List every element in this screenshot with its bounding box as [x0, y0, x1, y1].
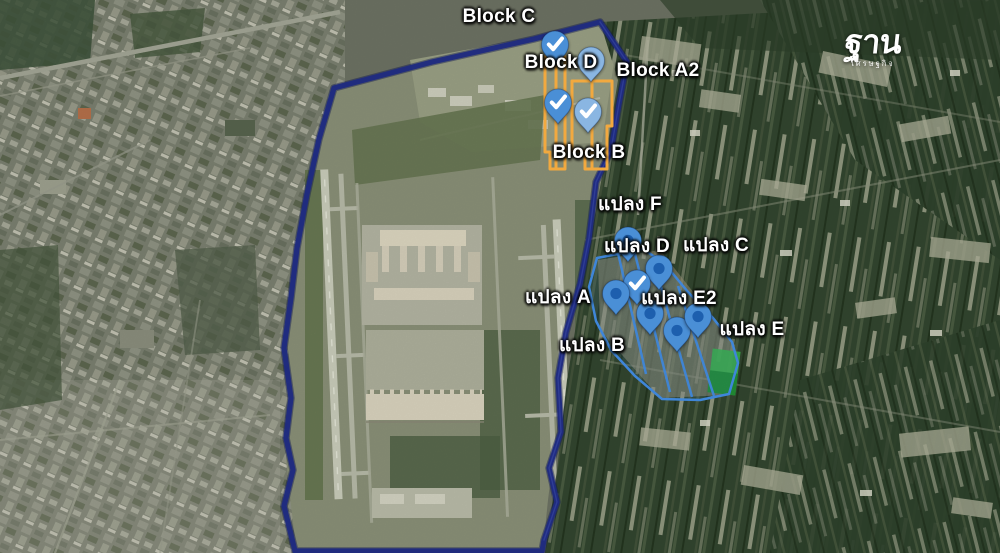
map-pin-check[interactable] [542, 31, 569, 66]
thansettakij-logo: ฐาน เศรษฐกิจ [828, 26, 918, 70]
logo-title: ฐาน [826, 26, 919, 57]
pin-dot-icon [653, 263, 664, 274]
pin-dot-icon [644, 308, 655, 319]
map-pin-dot[interactable] [603, 280, 630, 315]
map-pin-check[interactable] [575, 98, 602, 133]
map-pin-dot[interactable] [637, 300, 664, 335]
pin-dot-icon [671, 325, 682, 336]
logo-subtitle: เศรษฐกิจ [828, 58, 918, 70]
satellite-map-view[interactable]: Block CBlock DBlock A2Block Bแปลง Fแปลง … [0, 0, 1000, 553]
map-pin-check[interactable] [545, 89, 572, 124]
pin-dot-icon [622, 235, 633, 246]
pin-dot-icon [585, 55, 596, 66]
map-pin-dot[interactable] [578, 47, 605, 82]
map-pins-layer [0, 0, 1000, 553]
map-pin-dot[interactable] [615, 227, 642, 262]
pin-dot-icon [692, 311, 703, 322]
pin-dot-icon [610, 288, 621, 299]
